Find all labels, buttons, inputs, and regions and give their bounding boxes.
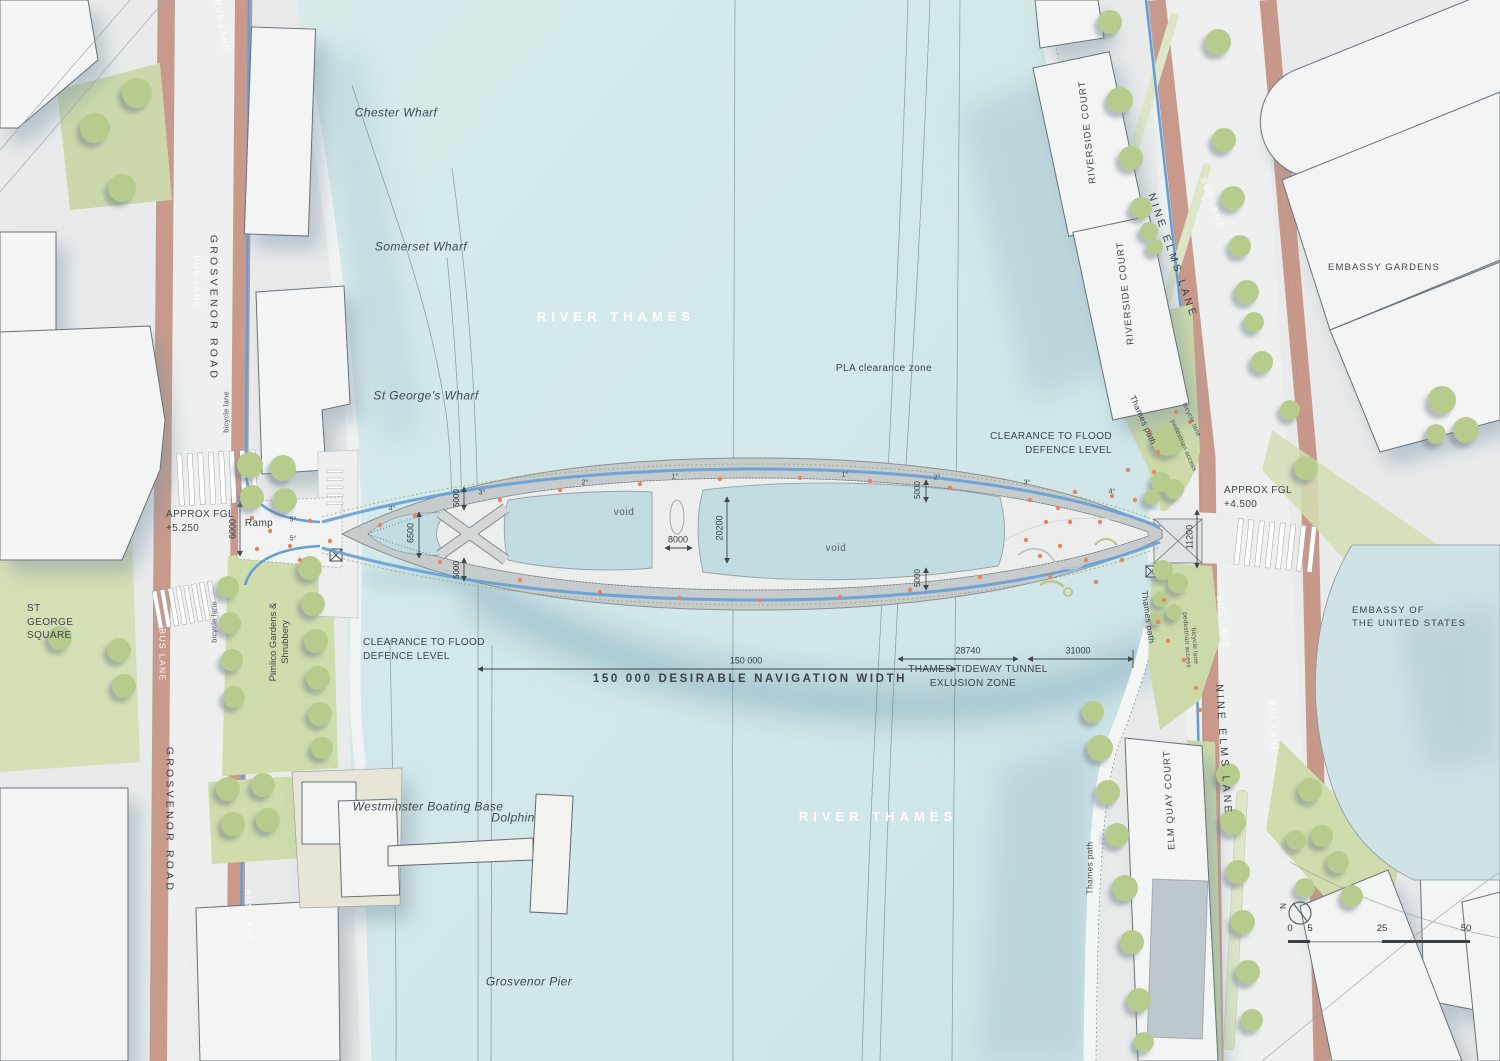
void-label-left: void [614,507,635,520]
grade-5-top: 5° [290,517,297,526]
pimlico-line1: Pimlico Gardens & [268,603,280,682]
approx-fgl-left-value: +5.250 [166,522,234,536]
dim-5000-c: 5000 [913,481,923,499]
dim-31000: 31000 [1065,645,1090,656]
st-george-line3: SQUARE [27,629,73,643]
clearance-left-line2: DEFENCE LEVEL [363,650,485,664]
bus-lane-label-1: BUS LANE [192,255,203,308]
void-label-right: void [826,543,847,556]
pla-clearance-zone-label: PLA clearance zone [836,363,932,376]
approx-fgl-left: APPROX FGL +5.250 [166,508,234,535]
wharf-label-chester: Chester Wharf [355,106,438,121]
grade-2-right: 2° [934,475,941,484]
dim-5000-b: 5000 [452,561,462,579]
clearance-flood-left: CLEARANCE TO FLOOD DEFENCE LEVEL [363,636,485,663]
dim-11200: 11200 [1184,525,1195,549]
tideway-label-line1: THAMES TIDEWAY TUNNEL [908,664,1048,677]
approx-fgl-left-line1: APPROX FGL [166,508,234,522]
clearance-right-line1: CLEARANCE TO FLOOD [912,430,1112,444]
grade-4-left: 4° [389,506,396,515]
nav-width-label: 150 000 DESIRABLE NAVIGATION WIDTH [593,672,907,686]
grade-2-left: 2° [582,480,589,489]
st-george-line2: GEORGE [27,616,73,630]
grade-3-right: 3° [1024,480,1031,489]
scale-5: 5 [1307,923,1312,935]
dolphin-label: Dolphin [491,811,535,826]
scale-50: 50 [1461,923,1472,935]
dim-28740: 28740 [955,645,980,656]
approx-fgl-right-value: +4.500 [1224,498,1292,512]
grade-3-left: 3° [479,490,486,499]
elm-quay-court-pool [1147,879,1207,1039]
dim-20200: 20200 [714,515,725,540]
dim-6000: 6000 [227,519,238,539]
bridge-void-right [698,483,1004,580]
scale-25: 25 [1377,923,1388,935]
embassy-us-label: EMBASSY OF THE UNITED STATES [1352,605,1466,631]
embassy-us-line1: EMBASSY OF [1352,605,1466,618]
river-thames-label-upper: RIVER THAMES [537,309,695,325]
pimlico-gardens-label: Pimlico Gardens & Shrubbery [268,603,292,682]
approx-fgl-right-line1: APPROX FGL [1224,484,1292,498]
river-thames-label-lower: RIVER THAMES [799,809,957,825]
st-george-line1: ST [27,602,73,616]
dim-6500: 6500 [405,523,416,543]
grade-4-right: 4° [1109,489,1116,498]
boating-base-label: Westminster Boating Base [353,800,504,815]
pimlico-line2: Shrubbery [280,603,292,682]
dim-8000: 8000 [668,534,688,545]
north-label: N [1279,903,1289,909]
site-plan-map: RIVER THAMES RIVER THAMES PLA clearance … [0,0,1500,1061]
dolphin-structure [530,794,573,914]
embassy-us-line2: THE UNITED STATES [1352,618,1466,631]
embassy-gardens-label: EMBASSY GARDENS [1328,262,1440,274]
thames-path-label-3: Thames path [1085,842,1096,895]
clearance-flood-right: CLEARANCE TO FLOOD DEFENCE LEVEL [912,430,1112,457]
clearance-left-line1: CLEARANCE TO FLOOD [363,636,485,650]
grade-1-right: 1° [842,472,849,481]
dim-5000-d: 5000 [913,569,923,587]
bicycle-lane-label-1: bicycle lane [221,391,230,433]
grosvenor-road-label-north: GROSVENOR ROAD [206,235,219,381]
approx-fgl-right: APPROX FGL +4.500 [1224,484,1292,511]
grosvenor-pier-label: Grosvenor Pier [486,975,572,990]
grade-5-bottom: 5° [290,536,297,545]
ramp-label: Ramp [245,518,273,531]
st-george-square-label: ST GEORGE SQUARE [27,602,73,643]
tideway-label-line2: EXLUSION ZONE [930,678,1016,691]
wharf-label-somerset: Somerset Wharf [375,240,467,255]
bus-lane-label-2: BUS LANE [157,628,168,681]
scale-0: 0 [1287,923,1292,935]
bridge-void-left [504,491,652,570]
grade-1-left: 1° [672,474,679,483]
clearance-right-line2: DEFENCE LEVEL [912,444,1112,458]
dim-5000-a: 5000 [452,489,462,507]
grosvenor-road-label-south: GROSVENOR ROAD [162,747,175,893]
nav-width-value: 150 000 [730,655,763,666]
bicycle-lane-label-2: bicycle lane [209,601,218,643]
wharf-label-st-georges: St George's Wharf [373,389,478,404]
